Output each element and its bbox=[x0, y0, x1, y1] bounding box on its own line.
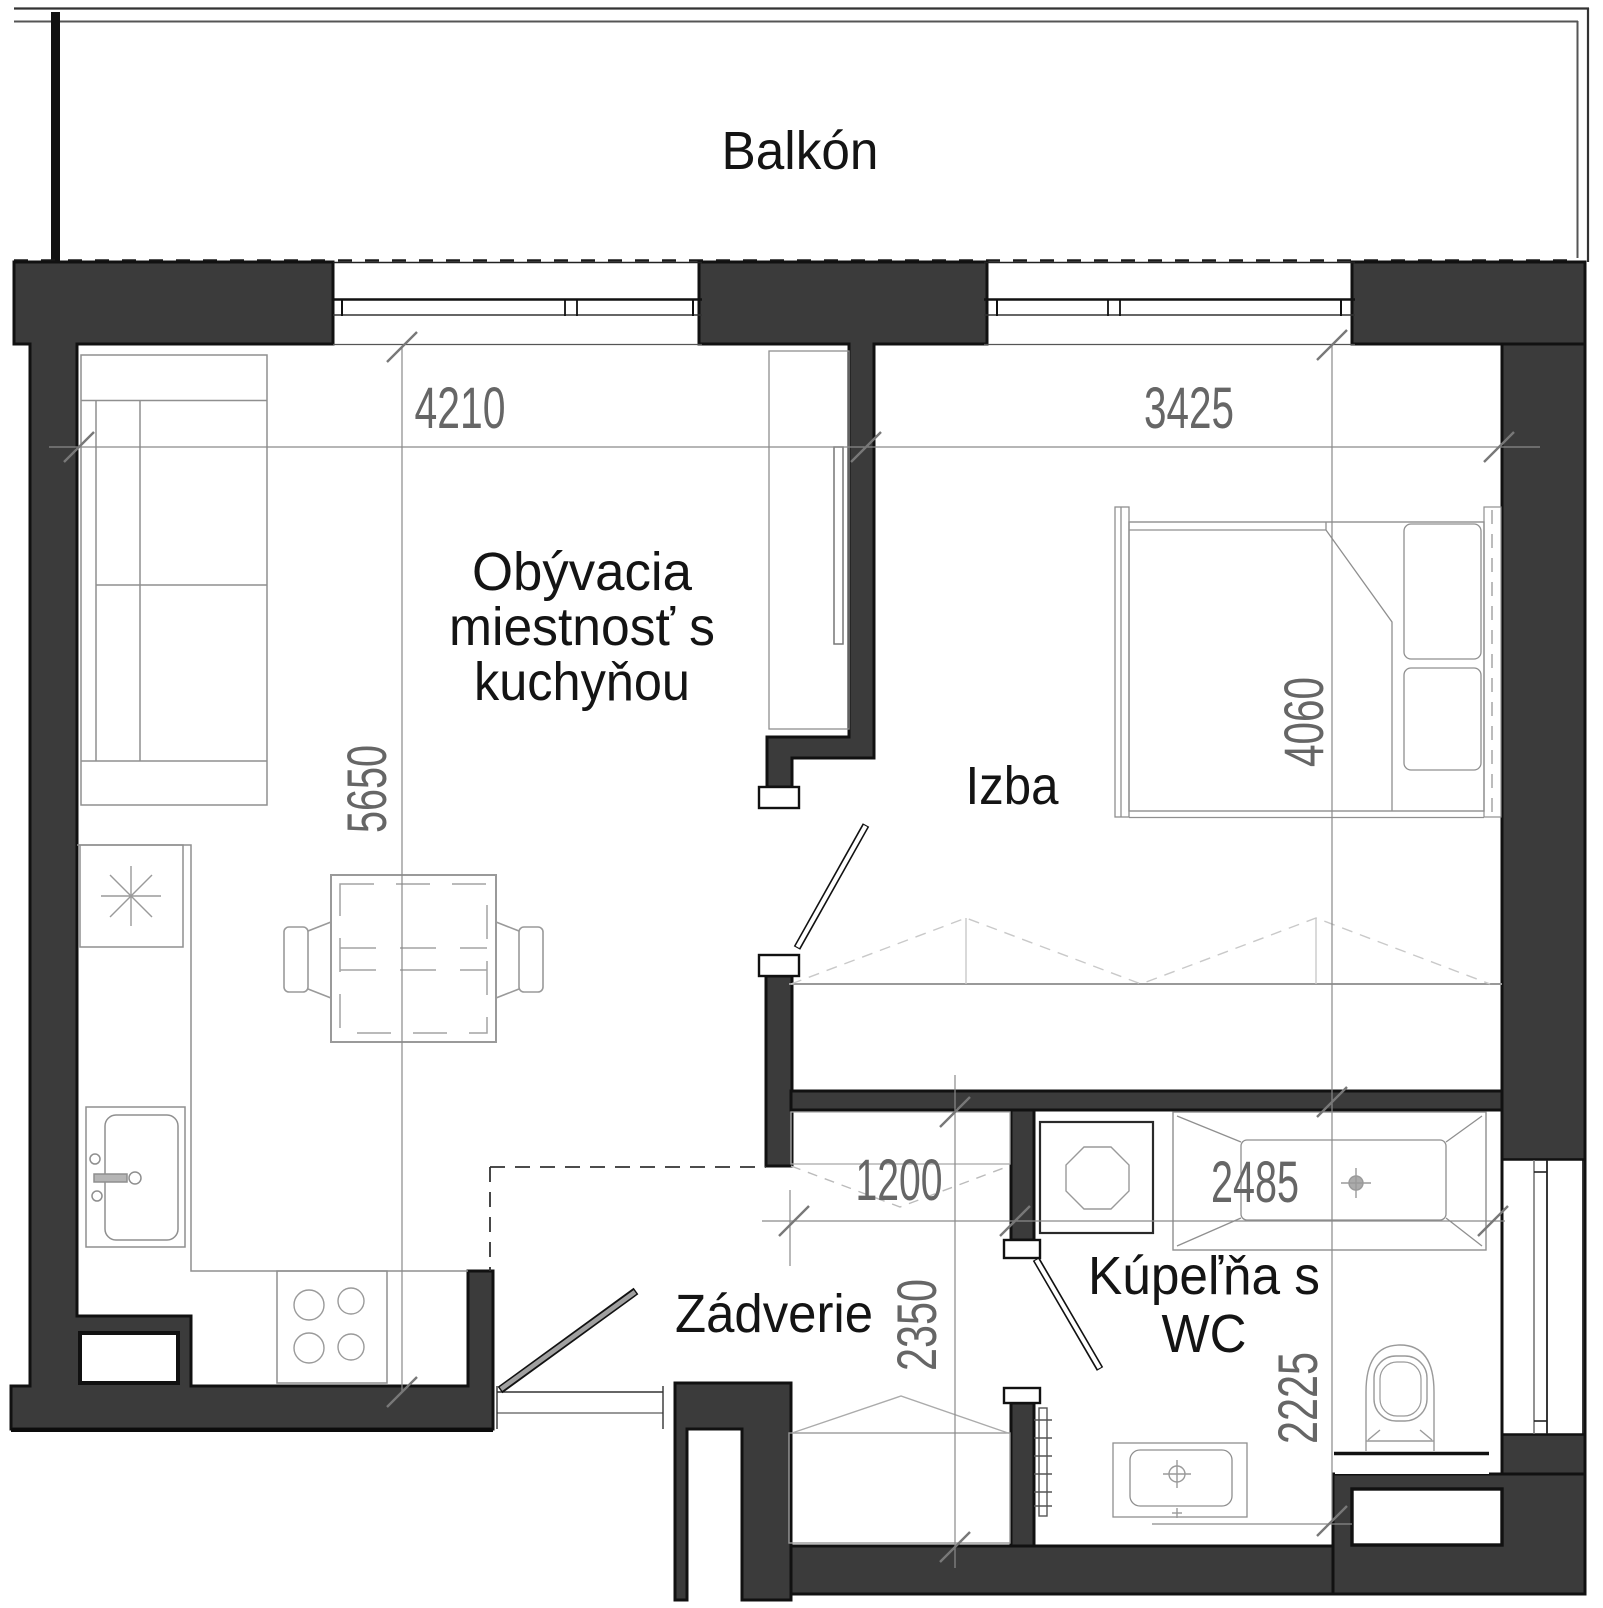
svg-text:2225: 2225 bbox=[1266, 1352, 1329, 1444]
svg-text:WC: WC bbox=[1162, 1304, 1247, 1364]
svg-text:Kúpeľňa s: Kúpeľňa s bbox=[1088, 1246, 1320, 1306]
svg-text:Balkón: Balkón bbox=[722, 121, 879, 181]
svg-text:Zádverie: Zádverie bbox=[675, 1284, 873, 1344]
svg-text:miestnosť s: miestnosť s bbox=[449, 597, 715, 657]
svg-text:Izba: Izba bbox=[966, 756, 1060, 816]
svg-text:4210: 4210 bbox=[415, 376, 506, 441]
svg-text:3425: 3425 bbox=[1144, 376, 1234, 441]
svg-text:5650: 5650 bbox=[335, 745, 398, 833]
svg-text:2350: 2350 bbox=[885, 1279, 948, 1371]
svg-text:1200: 1200 bbox=[856, 1148, 943, 1213]
svg-text:kuchyňou: kuchyňou bbox=[474, 652, 690, 712]
svg-text:Obývacia: Obývacia bbox=[472, 542, 693, 602]
svg-text:4060: 4060 bbox=[1272, 677, 1335, 767]
svg-text:2485: 2485 bbox=[1211, 1150, 1299, 1215]
